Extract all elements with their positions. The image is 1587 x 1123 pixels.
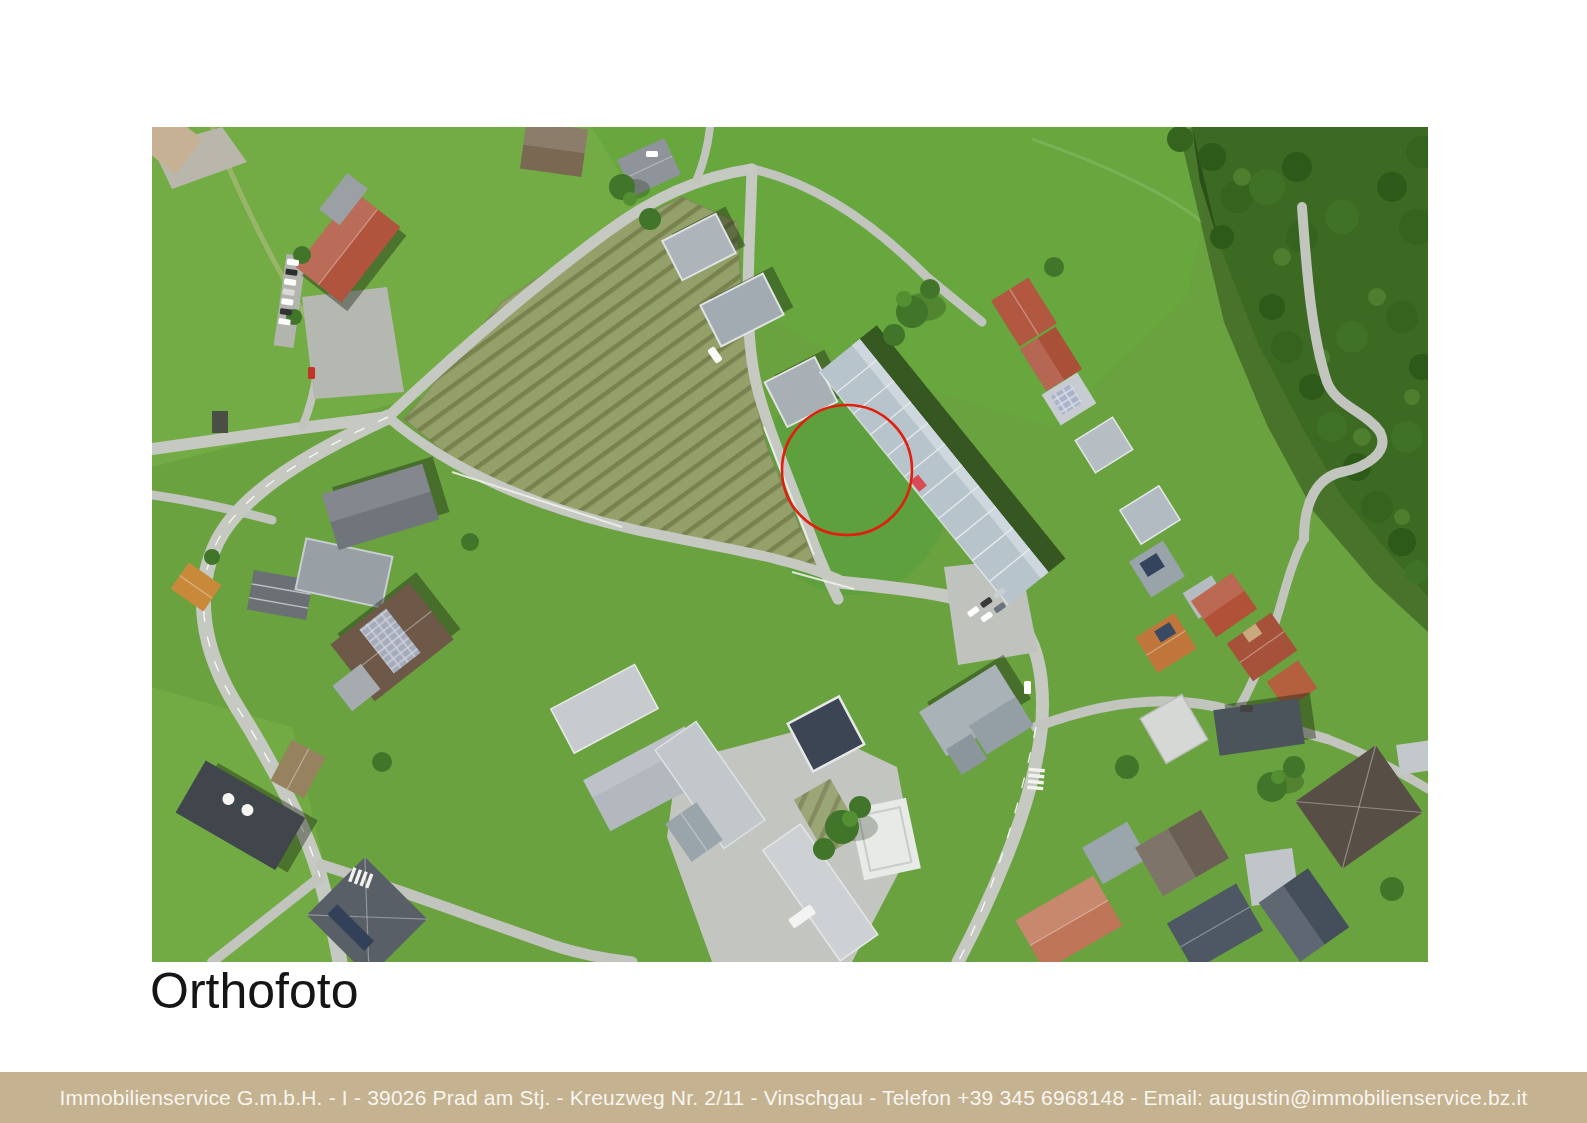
orthophoto-canvas — [152, 127, 1428, 962]
orthophoto-image — [152, 127, 1428, 962]
footer-contact-text: Immobilienservice G.m.b.H. - I - 39026 P… — [60, 1086, 1528, 1110]
page: Orthofoto Immobilienservice G.m.b.H. - I… — [0, 0, 1587, 1123]
footer-bar: Immobilienservice G.m.b.H. - I - 39026 P… — [0, 1072, 1587, 1123]
page-title: Orthofoto — [150, 962, 358, 1020]
